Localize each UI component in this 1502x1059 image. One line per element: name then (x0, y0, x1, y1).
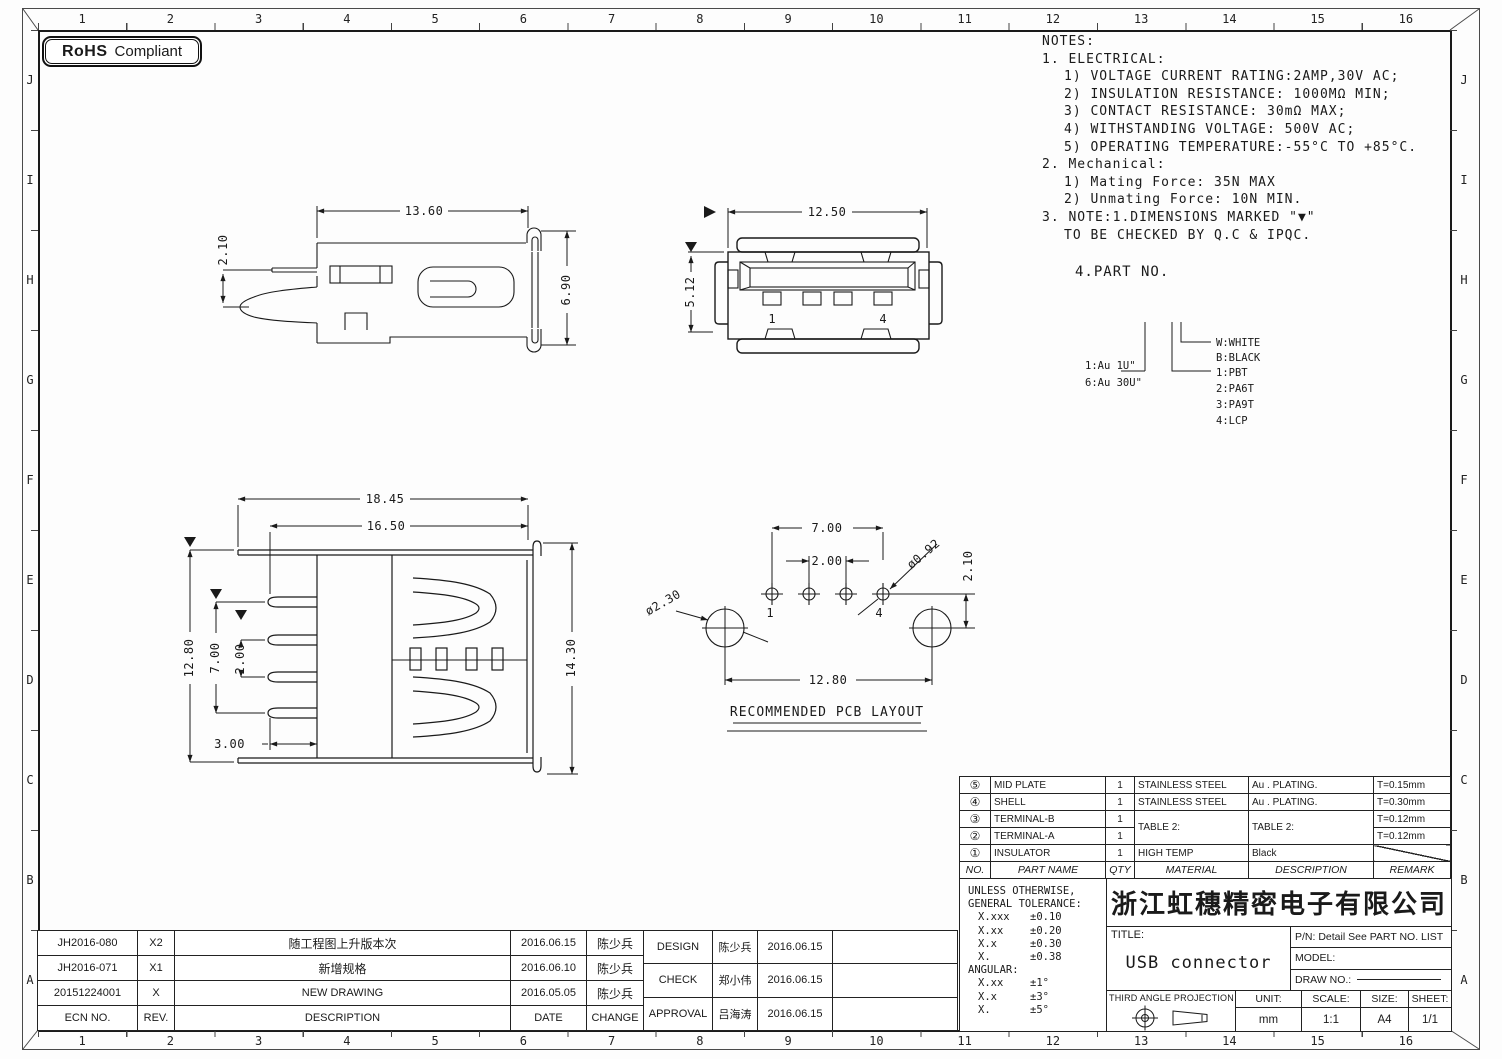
tolerance-heading: GENERAL TOLERANCE: (968, 898, 1106, 911)
unit-label: UNIT: (1236, 991, 1301, 1008)
rev-date: 2016.05.05 (511, 981, 587, 1006)
parts-header-description: DESCRIPTION (1249, 862, 1374, 879)
approval-row: APPROVAL 吕海涛 2016.06.15 (644, 997, 958, 1030)
angular-key: X. (968, 1004, 1030, 1017)
part-description: Au . PLATING. (1249, 794, 1374, 811)
part-material: TABLE 2: (1135, 811, 1249, 845)
parts-header-material: MATERIAL (1135, 862, 1249, 879)
unit-value: mm (1236, 1008, 1301, 1031)
rev-code: X2 (138, 931, 175, 956)
header-date: DATE (511, 1006, 587, 1031)
angular-value: ±3° (1030, 991, 1049, 1004)
tolerance-key: X.x (968, 938, 1030, 951)
scale-label: SCALE: (1302, 991, 1360, 1008)
pin-label-1: 1 (768, 312, 775, 326)
part-qty: 1 (1106, 811, 1135, 828)
rev-description: NEW DRAWING (175, 981, 511, 1006)
part-no-badge: ③ (960, 811, 991, 828)
approval-table: DESIGN 陈少兵 2016.06.15 CHECK 郑小伟 2016.06.… (643, 930, 958, 1031)
parts-header-row: NO. PART NAME QTY MATERIAL DESCRIPTION R… (960, 862, 1451, 879)
dim-label-side-offset: 2.10 (216, 235, 230, 266)
draw-no-label: DRAW NO.: (1295, 974, 1351, 986)
part-description: Black (1249, 845, 1374, 862)
parts-row: ④ SHELL 1 STAINLESS STEEL Au . PLATING. … (960, 794, 1451, 811)
approval-name: 陈少兵 (713, 931, 758, 964)
front-view-details (728, 252, 929, 339)
dim-label-pcb-offset: 2.10 (961, 551, 975, 582)
part-no-badge: ② (960, 828, 991, 845)
top-view-drawing (238, 541, 541, 772)
approval-extra (833, 997, 958, 1030)
dim-label-pcb-span: 7.00 (812, 521, 843, 535)
part-remark-blank (1374, 845, 1451, 862)
tolerance-block: UNLESS OTHERWISE, GENERAL TOLERANCE: X.x… (960, 879, 1107, 1031)
legend-material-3: 3:PA9T (1216, 399, 1255, 411)
approval-row: CHECK 郑小伟 2016.06.15 (644, 964, 958, 997)
parts-row: ① INSULATOR 1 HIGH TEMP Black (960, 845, 1451, 862)
third-angle-symbol (1107, 1005, 1233, 1031)
top-view-dimensions (184, 499, 578, 774)
header-rev: REV. (138, 1006, 175, 1031)
parts-header-qty: QTY (1106, 862, 1135, 879)
revision-row: JH2016-071 X1 新增规格 2016.06.10 陈少兵 (38, 956, 644, 981)
angular-value: ±5° (1030, 1004, 1049, 1017)
part-qty: 1 (1106, 777, 1135, 794)
part-description: TABLE 2: (1249, 811, 1374, 845)
ecn-no: JH2016-080 (38, 931, 138, 956)
tolerance-value: ±0.30 (1030, 938, 1062, 951)
title-label: TITLE: (1111, 929, 1144, 941)
approval-role: APPROVAL (644, 997, 713, 1030)
part-name: TERMINAL-B (991, 811, 1106, 828)
header-ecn-no: ECN NO. (38, 1006, 138, 1031)
tolerance-heading: UNLESS OTHERWISE, (968, 885, 1106, 898)
approval-date: 2016.06.15 (758, 931, 833, 964)
rev-change-by: 陈少兵 (587, 931, 644, 956)
rev-description: 随工程图上升版本次 (175, 931, 511, 956)
part-remark: T=0.12mm (1374, 811, 1451, 828)
approval-row: DESIGN 陈少兵 2016.06.15 (644, 931, 958, 964)
legend-material-4: 4:LCP (1216, 415, 1248, 427)
angular-key: X.xx (968, 977, 1030, 990)
part-material: STAINLESS STEEL (1135, 794, 1249, 811)
side-view-drawing (240, 228, 541, 352)
tolerance-key: X. (968, 951, 1030, 964)
tolerance-key: X.xxx (968, 911, 1030, 924)
approval-date: 2016.06.15 (758, 964, 833, 997)
title-cell: TITLE: USB connector (1107, 927, 1291, 990)
draw-no-blank-line (1357, 979, 1441, 980)
drawing-title: USB connector (1107, 953, 1290, 973)
tolerance-value: ±0.38 (1030, 951, 1062, 964)
part-name: MID PLATE (991, 777, 1106, 794)
part-qty: 1 (1106, 845, 1135, 862)
pcb-pin-label-1: 1 (766, 606, 773, 620)
dim-label-side-height: 6.90 (559, 275, 573, 306)
revision-header-row: ECN NO. REV. DESCRIPTION DATE CHANGE (38, 1006, 644, 1031)
dim-label-top-height-right: 14.30 (564, 639, 578, 678)
dim-label-pin-pitch: 2.00 (233, 644, 247, 675)
size-label: SIZE: (1361, 991, 1408, 1008)
company-name: 浙江虹穗精密电子有限公司 (1107, 879, 1451, 927)
header-description: DESCRIPTION (175, 1006, 511, 1031)
approval-role: DESIGN (644, 931, 713, 964)
pcb-layout-drawing (702, 583, 975, 652)
parts-header-remark: REMARK (1374, 862, 1451, 879)
revision-row: JH2016-080 X2 随工程图上升版本次 2016.06.15 陈少兵 (38, 931, 644, 956)
scale-value: 1:1 (1302, 1008, 1360, 1031)
part-material: STAINLESS STEEL (1135, 777, 1249, 794)
tolerance-value: ±0.10 (1030, 911, 1062, 924)
parts-header-name: PART NAME (991, 862, 1106, 879)
dim-label-front-width: 12.50 (808, 205, 847, 219)
dim-label-front-height: 5.12 (683, 277, 697, 308)
approval-date: 2016.06.15 (758, 997, 833, 1030)
parts-row: ③ TERMINAL-B 1 TABLE 2: TABLE 2: T=0.12m… (960, 811, 1451, 828)
dim-label-top-inner-width: 16.50 (367, 519, 406, 533)
part-name: SHELL (991, 794, 1106, 811)
sheet-cell: SHEET: 1/1 (1409, 991, 1451, 1031)
part-number-note: P/N: Detail See PART NO. LIST (1291, 927, 1451, 948)
title-block: UNLESS OTHERWISE, GENERAL TOLERANCE: X.x… (959, 878, 1452, 1032)
dim-label-pin-span: 7.00 (208, 643, 222, 674)
sheet-label: SHEET: (1409, 991, 1451, 1008)
size-cell: SIZE: A4 (1361, 991, 1409, 1031)
part-no-badge: ④ (960, 794, 991, 811)
engineering-drawing-sheet: { "rohs": {"bold": "RoHS", "rest": "Comp… (0, 0, 1502, 1059)
tolerance-value: ±0.20 (1030, 925, 1062, 938)
angular-key: X.x (968, 991, 1030, 1004)
part-no-badge: ① (960, 845, 991, 862)
pcb-layout-caption: RECOMMENDED PCB LAYOUT (730, 705, 924, 720)
parts-row: ⑤ MID PLATE 1 STAINLESS STEEL Au . PLATI… (960, 777, 1451, 794)
ecn-no: JH2016-071 (38, 956, 138, 981)
approval-name: 郑小伟 (713, 964, 758, 997)
pcb-pin-label-4: 4 (875, 606, 882, 620)
legend-white: W:WHITE (1216, 337, 1260, 349)
front-view-dimensions (685, 206, 927, 332)
legend-black: B:BLACK (1216, 352, 1261, 364)
approval-role: CHECK (644, 964, 713, 997)
approval-extra (833, 964, 958, 997)
rev-date: 2016.06.15 (511, 931, 587, 956)
dim-label-pcb-hole-small: ø0.92 (904, 536, 943, 572)
dim-label-side-width: 13.60 (405, 204, 444, 218)
rev-change-by: 陈少兵 (587, 956, 644, 981)
rev-description: 新增规格 (175, 956, 511, 981)
model-label: MODEL: (1291, 948, 1451, 969)
dim-label-pcb-pitch: 2.00 (812, 554, 843, 568)
rev-change-by: 陈少兵 (587, 981, 644, 1006)
part-remark: T=0.12mm (1374, 828, 1451, 845)
dim-label-pcb-hole-big: ø2.30 (643, 587, 683, 618)
projection-cell: THIRD ANGLE PROJECTION (1107, 991, 1236, 1031)
size-value: A4 (1361, 1008, 1408, 1031)
part-qty: 1 (1106, 794, 1135, 811)
rev-date: 2016.06.10 (511, 956, 587, 981)
unit-cell: UNIT: mm (1236, 991, 1302, 1031)
rev-code: X (138, 981, 175, 1006)
header-change: CHANGE (587, 1006, 644, 1031)
dim-label-top-height-left: 12.80 (182, 639, 196, 678)
legend-material-2: 2:PA6T (1216, 383, 1255, 395)
part-name: TERMINAL-A (991, 828, 1106, 845)
scale-cell: SCALE: 1:1 (1302, 991, 1361, 1031)
legend-au-6: 6:Au 30U" (1085, 377, 1142, 389)
parts-header-no: NO. (960, 862, 991, 879)
part-qty: 1 (1106, 828, 1135, 845)
draw-no-row: DRAW NO.: (1291, 970, 1451, 990)
revision-table: JH2016-080 X2 随工程图上升版本次 2016.06.15 陈少兵 J… (37, 930, 644, 1031)
dim-label-pcb-span-big: 12.80 (809, 673, 848, 687)
angular-heading: ANGULAR: (968, 964, 1106, 977)
parts-table: ⑤ MID PLATE 1 STAINLESS STEEL Au . PLATI… (959, 776, 1451, 879)
part-name: INSULATOR (991, 845, 1106, 862)
part-no-badge: ⑤ (960, 777, 991, 794)
sheet-value: 1/1 (1409, 1008, 1451, 1031)
front-view-drawing (715, 238, 942, 353)
revision-row: 20151224001 X NEW DRAWING 2016.05.05 陈少兵 (38, 981, 644, 1006)
approval-name: 吕海涛 (713, 997, 758, 1030)
dim-label-top-outer-width: 18.45 (366, 492, 405, 506)
legend-material-1: 1:PBT (1216, 367, 1248, 379)
ecn-no: 20151224001 (38, 981, 138, 1006)
rev-code: X1 (138, 956, 175, 981)
legend-au-1: 1:Au 1U" (1085, 360, 1136, 372)
part-material: HIGH TEMP (1135, 845, 1249, 862)
projection-label: THIRD ANGLE PROJECTION (1109, 993, 1234, 1003)
angular-value: ±1° (1030, 977, 1049, 990)
part-remark: T=0.15mm (1374, 777, 1451, 794)
part-remark: T=0.30mm (1374, 794, 1451, 811)
approval-extra (833, 931, 958, 964)
tolerance-key: X.xx (968, 925, 1030, 938)
side-view-dimensions (223, 206, 576, 345)
pin-label-4: 4 (879, 312, 886, 326)
dim-label-pin-length: 3.00 (214, 737, 245, 751)
part-description: Au . PLATING. (1249, 777, 1374, 794)
